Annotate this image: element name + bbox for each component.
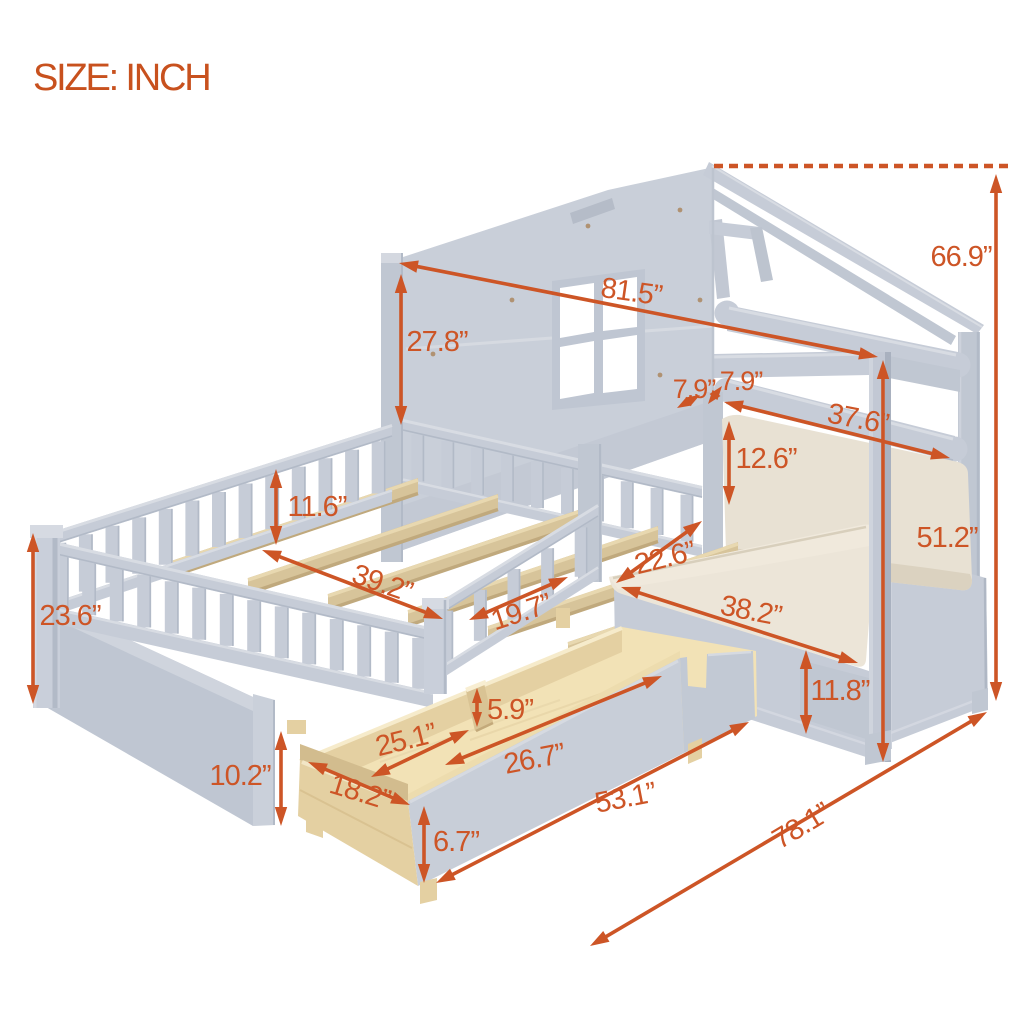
svg-text:10.2”: 10.2” bbox=[209, 760, 270, 792]
svg-text:51.2”: 51.2” bbox=[916, 522, 977, 554]
svg-text:11.8”: 11.8” bbox=[811, 675, 870, 707]
svg-text:27.8”: 27.8” bbox=[406, 326, 467, 358]
svg-text:12.6”: 12.6” bbox=[735, 443, 796, 475]
svg-text:7.9”: 7.9” bbox=[673, 374, 716, 404]
svg-text:5.9”: 5.9” bbox=[487, 694, 533, 726]
svg-text:66.9”: 66.9” bbox=[930, 241, 991, 273]
svg-text:11.6”: 11.6” bbox=[288, 491, 347, 523]
svg-text:SIZE: INCH: SIZE: INCH bbox=[33, 57, 209, 99]
svg-text:7.9”: 7.9” bbox=[720, 366, 763, 396]
svg-text:23.6”: 23.6” bbox=[39, 600, 100, 632]
svg-text:6.7”: 6.7” bbox=[433, 826, 479, 858]
